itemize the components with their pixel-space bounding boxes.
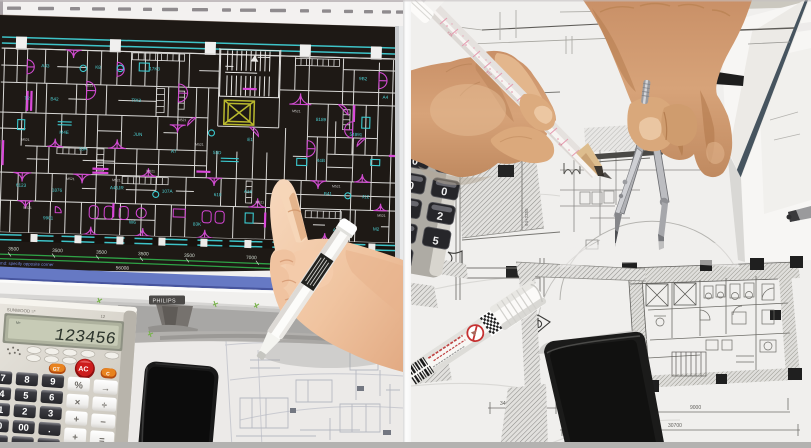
svg-text:44B: 44B xyxy=(317,158,325,163)
svg-text:TfX3: TfX3 xyxy=(131,98,141,103)
svg-text:9B2: 9B2 xyxy=(359,76,368,81)
svg-text:GT: GT xyxy=(53,366,60,372)
svg-text:M+: M+ xyxy=(16,321,21,325)
svg-text:A45JR: A45JR xyxy=(110,185,125,190)
svg-text:M521: M521 xyxy=(195,142,204,146)
svg-text:M2: M2 xyxy=(373,226,380,231)
svg-text:7000: 7000 xyxy=(246,255,257,261)
svg-text:A4: A4 xyxy=(382,95,388,100)
svg-text:A16: A16 xyxy=(244,189,253,194)
svg-text:3500: 3500 xyxy=(184,253,195,259)
svg-text:8: 8 xyxy=(24,375,30,386)
svg-text:M521: M521 xyxy=(178,118,187,122)
svg-text:M521: M521 xyxy=(112,178,121,182)
svg-text:M521: M521 xyxy=(23,206,32,210)
svg-text:M521: M521 xyxy=(146,169,155,173)
svg-text:%: % xyxy=(74,380,84,392)
svg-text:3500: 3500 xyxy=(138,251,149,257)
svg-text:6: 6 xyxy=(49,392,55,403)
svg-text:9: 9 xyxy=(50,376,56,387)
svg-text:00: 00 xyxy=(18,422,29,434)
svg-text:2: 2 xyxy=(22,406,28,417)
svg-text:M521: M521 xyxy=(21,138,30,142)
svg-text:A43: A43 xyxy=(41,63,50,68)
svg-text:M521: M521 xyxy=(256,200,265,204)
svg-text:÷: ÷ xyxy=(101,400,107,411)
svg-text:618: 618 xyxy=(214,192,222,197)
svg-text:T2: T2 xyxy=(24,96,30,101)
svg-text:83K: 83K xyxy=(193,221,202,226)
svg-text:M4E: M4E xyxy=(59,130,69,135)
svg-text:→: → xyxy=(100,383,110,395)
svg-text:30700: 30700 xyxy=(668,423,682,429)
svg-text:AC: AC xyxy=(78,366,89,374)
svg-text:7: 7 xyxy=(0,373,6,384)
svg-text:3500: 3500 xyxy=(8,246,19,252)
svg-text:M521: M521 xyxy=(332,184,341,188)
svg-text:M521: M521 xyxy=(377,214,386,218)
svg-text:W6: W6 xyxy=(129,220,136,225)
svg-text:E1: E1 xyxy=(247,137,253,142)
svg-text:M521: M521 xyxy=(292,109,301,113)
svg-text:B42: B42 xyxy=(50,96,59,101)
svg-text:107A: 107A xyxy=(162,189,174,194)
svg-text:K8: K8 xyxy=(95,65,101,70)
svg-text:17K3: 17K3 xyxy=(149,66,160,71)
svg-text:1876: 1876 xyxy=(52,188,63,193)
svg-text:3500: 3500 xyxy=(96,250,107,256)
svg-text:56008: 56008 xyxy=(116,265,130,271)
svg-text:M521: M521 xyxy=(66,177,75,181)
svg-text:54891: 54891 xyxy=(349,132,362,137)
svg-text:94+2355: 94+2355 xyxy=(524,208,529,226)
svg-text:33A: 33A xyxy=(79,146,88,151)
svg-text:A7: A7 xyxy=(171,149,177,154)
svg-text:B41: B41 xyxy=(324,191,333,196)
svg-text:PHILIPS: PHILIPS xyxy=(153,299,176,305)
svg-text:9000: 9000 xyxy=(690,405,701,411)
svg-text:9901: 9901 xyxy=(43,215,54,220)
svg-text:55D: 55D xyxy=(213,150,222,155)
svg-text:3500: 3500 xyxy=(52,248,63,254)
svg-text:8189: 8189 xyxy=(316,117,327,122)
svg-text:J12: J12 xyxy=(362,194,370,199)
svg-text:JUN: JUN xyxy=(133,132,142,137)
svg-text:3: 3 xyxy=(48,408,54,419)
svg-text:M521: M521 xyxy=(85,83,94,87)
svg-text:6123: 6123 xyxy=(16,183,27,188)
